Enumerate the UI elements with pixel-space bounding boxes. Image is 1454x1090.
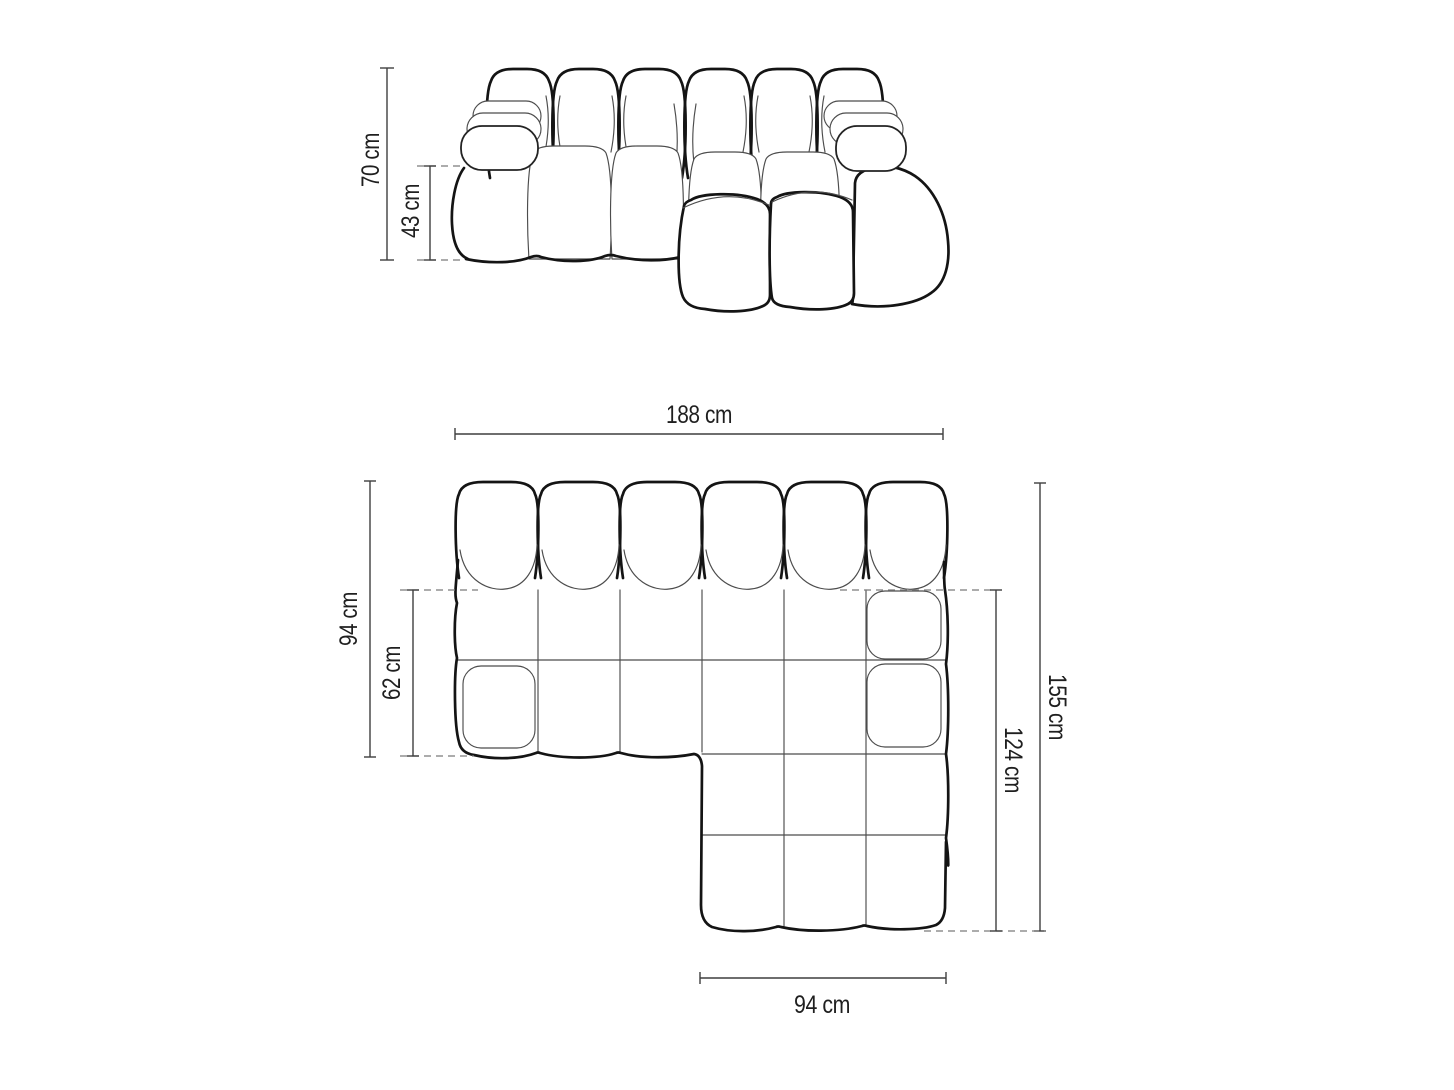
- right-armrest-pad: [867, 591, 941, 659]
- back-cushion-plan: [456, 482, 539, 578]
- seat-cushion: [528, 146, 612, 259]
- sofa-left-edge: [452, 168, 468, 259]
- dim-overall-height: 70 cm: [357, 68, 394, 260]
- left-armrest-pad: [463, 666, 535, 748]
- overall-width-label: 188 cm: [666, 401, 732, 429]
- sofa-depth-label: 94 cm: [335, 592, 363, 646]
- back-cushion-plan: [702, 482, 785, 578]
- dim-chaise-depth: 124 cm: [840, 590, 1046, 931]
- seat-height-label: 43 cm: [397, 184, 425, 238]
- cushion-bottom-crease: [870, 545, 946, 589]
- back-cushion-plan: [866, 482, 948, 578]
- right-armrest: [836, 126, 906, 171]
- chaise-cushion: [679, 194, 770, 311]
- diagram-svg: 70 cm 43 cm: [0, 0, 1454, 1090]
- sofa-dimension-diagram: 70 cm 43 cm: [0, 0, 1454, 1090]
- back-cushion-plan: [620, 482, 703, 578]
- dim-overall-width: 188 cm: [455, 401, 943, 440]
- front-elevation-view: 70 cm 43 cm: [357, 68, 948, 311]
- seat-depth-label: 62 cm: [378, 646, 406, 700]
- dim-sofa-depth: 94 cm: [335, 481, 376, 757]
- chaise-depth-label: 124 cm: [999, 727, 1027, 793]
- cushion-bottom-crease: [706, 545, 783, 589]
- sofa-plan-drawing: [455, 482, 949, 931]
- back-cushion-plan: [784, 482, 867, 578]
- dim-overall-depth: 155 cm: [1034, 483, 1071, 931]
- chaise-right-bulge: [852, 166, 948, 306]
- cushion-bottom-crease: [624, 545, 701, 589]
- dim-chaise-width: 94 cm: [700, 972, 946, 1019]
- chaise-width-label: 94 cm: [794, 991, 850, 1019]
- chaise-cushion: [770, 192, 854, 309]
- cushion-bottom-crease: [542, 545, 619, 589]
- cushion-bottom-crease: [788, 545, 865, 589]
- dim-seat-height: 43 cm: [397, 166, 464, 260]
- overall-depth-label: 155 cm: [1043, 674, 1071, 740]
- top-plan-view: 188 cm 94 cm 62 cm 155 cm: [335, 401, 1071, 1019]
- sofa-front-drawing: [452, 69, 949, 311]
- right-armrest-pad: [867, 664, 941, 747]
- overall-height-label: 70 cm: [357, 133, 385, 187]
- back-cushion-plan: [538, 482, 621, 578]
- seat-cushion: [611, 146, 684, 259]
- left-armrest: [461, 126, 538, 170]
- cushion-bottom-crease: [460, 545, 537, 589]
